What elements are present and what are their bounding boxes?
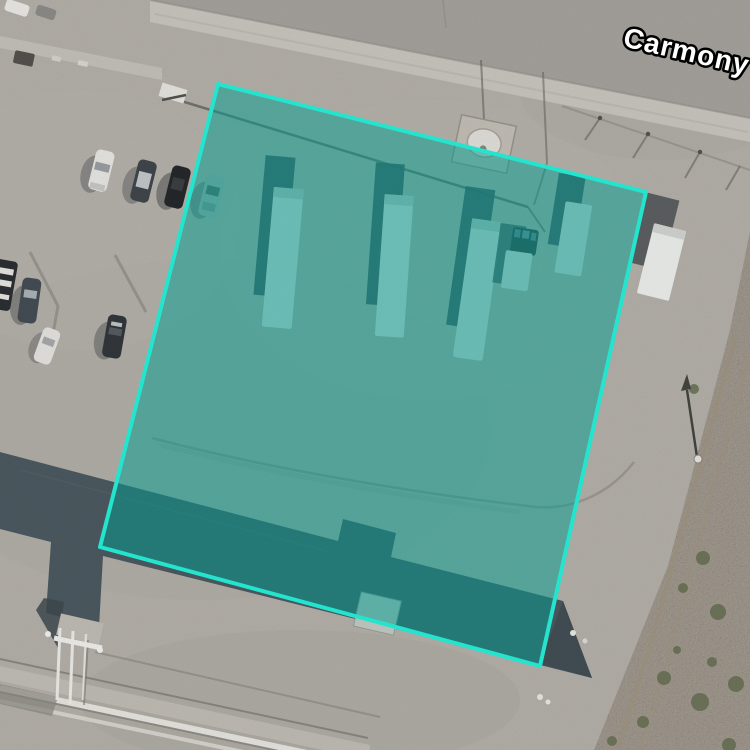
map-canvas[interactable]: Carmony bbox=[0, 0, 750, 750]
